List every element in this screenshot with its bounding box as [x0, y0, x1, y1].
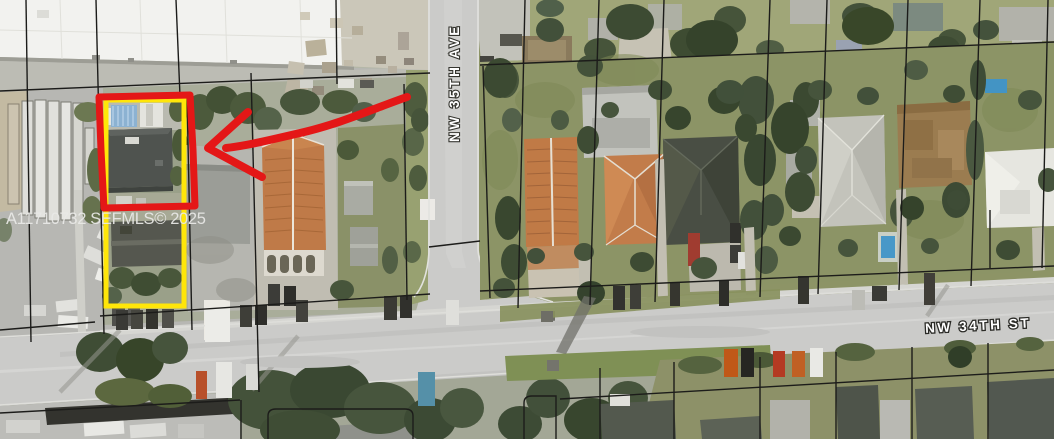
- svg-text:A11710732 SEFMLS© 2025: A11710732 SEFMLS© 2025: [6, 210, 206, 228]
- svg-text:NW 35TH AVE: NW 35TH AVE: [447, 24, 462, 142]
